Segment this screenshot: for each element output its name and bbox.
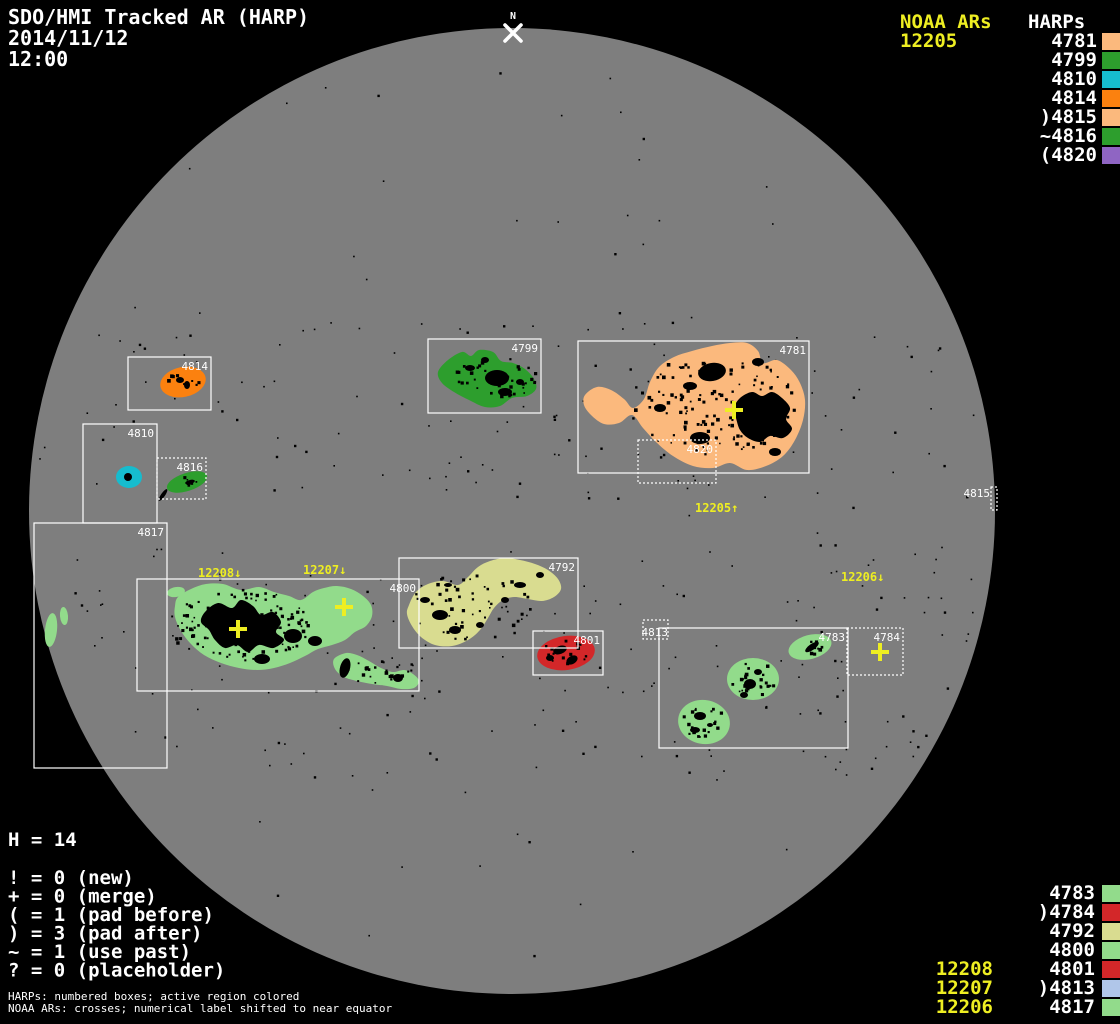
harp-box-label-4800: 4800 <box>390 582 417 595</box>
harp-color-swatch <box>1102 90 1120 107</box>
harp-legend-item: 4817 <box>1049 996 1095 1018</box>
noaa-label-12205: 12205↑ <box>695 501 738 515</box>
noaa-label-12206: 12206↓ <box>841 570 884 584</box>
harp-color-swatch <box>1102 999 1120 1016</box>
harp-color-swatch <box>1102 961 1120 978</box>
time-label: 12:00 <box>8 47 68 71</box>
harp-color-swatch <box>1102 52 1120 69</box>
harp-box-label-4814: 4814 <box>182 360 209 373</box>
harp-color-swatch <box>1102 980 1120 997</box>
solar-disk-chart: 4814481048164817479947814820481548004792… <box>0 0 1120 1024</box>
noaa-label-12207: 12207↓ <box>303 563 346 577</box>
harp-box-label-4816: 4816 <box>177 461 204 474</box>
harp-color-swatch <box>1102 109 1120 126</box>
harp-color-swatch <box>1102 904 1120 921</box>
harp-box-label-4783: 4783 <box>819 631 846 644</box>
harp-color-swatch <box>1102 71 1120 88</box>
harp-tracking-screen: 4814481048164817479947814820481548004792… <box>0 0 1120 1024</box>
harp-box-label-4801: 4801 <box>574 634 601 647</box>
noaa-legend-item: 12206 <box>936 996 993 1018</box>
solar-disk <box>29 28 995 994</box>
north-label: N <box>510 11 516 22</box>
harp-box-label-4815: 4815 <box>964 487 991 500</box>
harp-box-label-4799: 4799 <box>512 342 539 355</box>
harp-box-label-4781: 4781 <box>780 344 807 357</box>
harp-box-label-4817: 4817 <box>138 526 165 539</box>
harp-box-label-4810: 4810 <box>128 427 155 440</box>
harp-legend-item: (4820 <box>1040 144 1097 166</box>
harp-box-label-4784: 4784 <box>874 631 901 644</box>
flag-legend-line: ? = 0 (placeholder) <box>8 960 225 982</box>
harp-box-label-4792: 4792 <box>549 561 576 574</box>
noaa-bottom-legend: 122081220712206 <box>936 958 993 1018</box>
footnote-line: NOAA ARs: crosses; numerical label shift… <box>8 1002 392 1015</box>
harp-color-swatch <box>1102 942 1120 959</box>
harp-color-swatch <box>1102 923 1120 940</box>
harp-color-swatch <box>1102 885 1120 902</box>
harp-box-label-4820: 4820 <box>687 443 714 456</box>
harp-color-swatch <box>1102 147 1120 164</box>
harp-color-swatch <box>1102 33 1120 50</box>
noaa-ar-number: 12205 <box>900 30 957 52</box>
harp-color-swatch <box>1102 128 1120 145</box>
noaa-label-12208: 12208↓ <box>198 566 241 580</box>
harp-count-line: H = 14 <box>8 829 77 851</box>
